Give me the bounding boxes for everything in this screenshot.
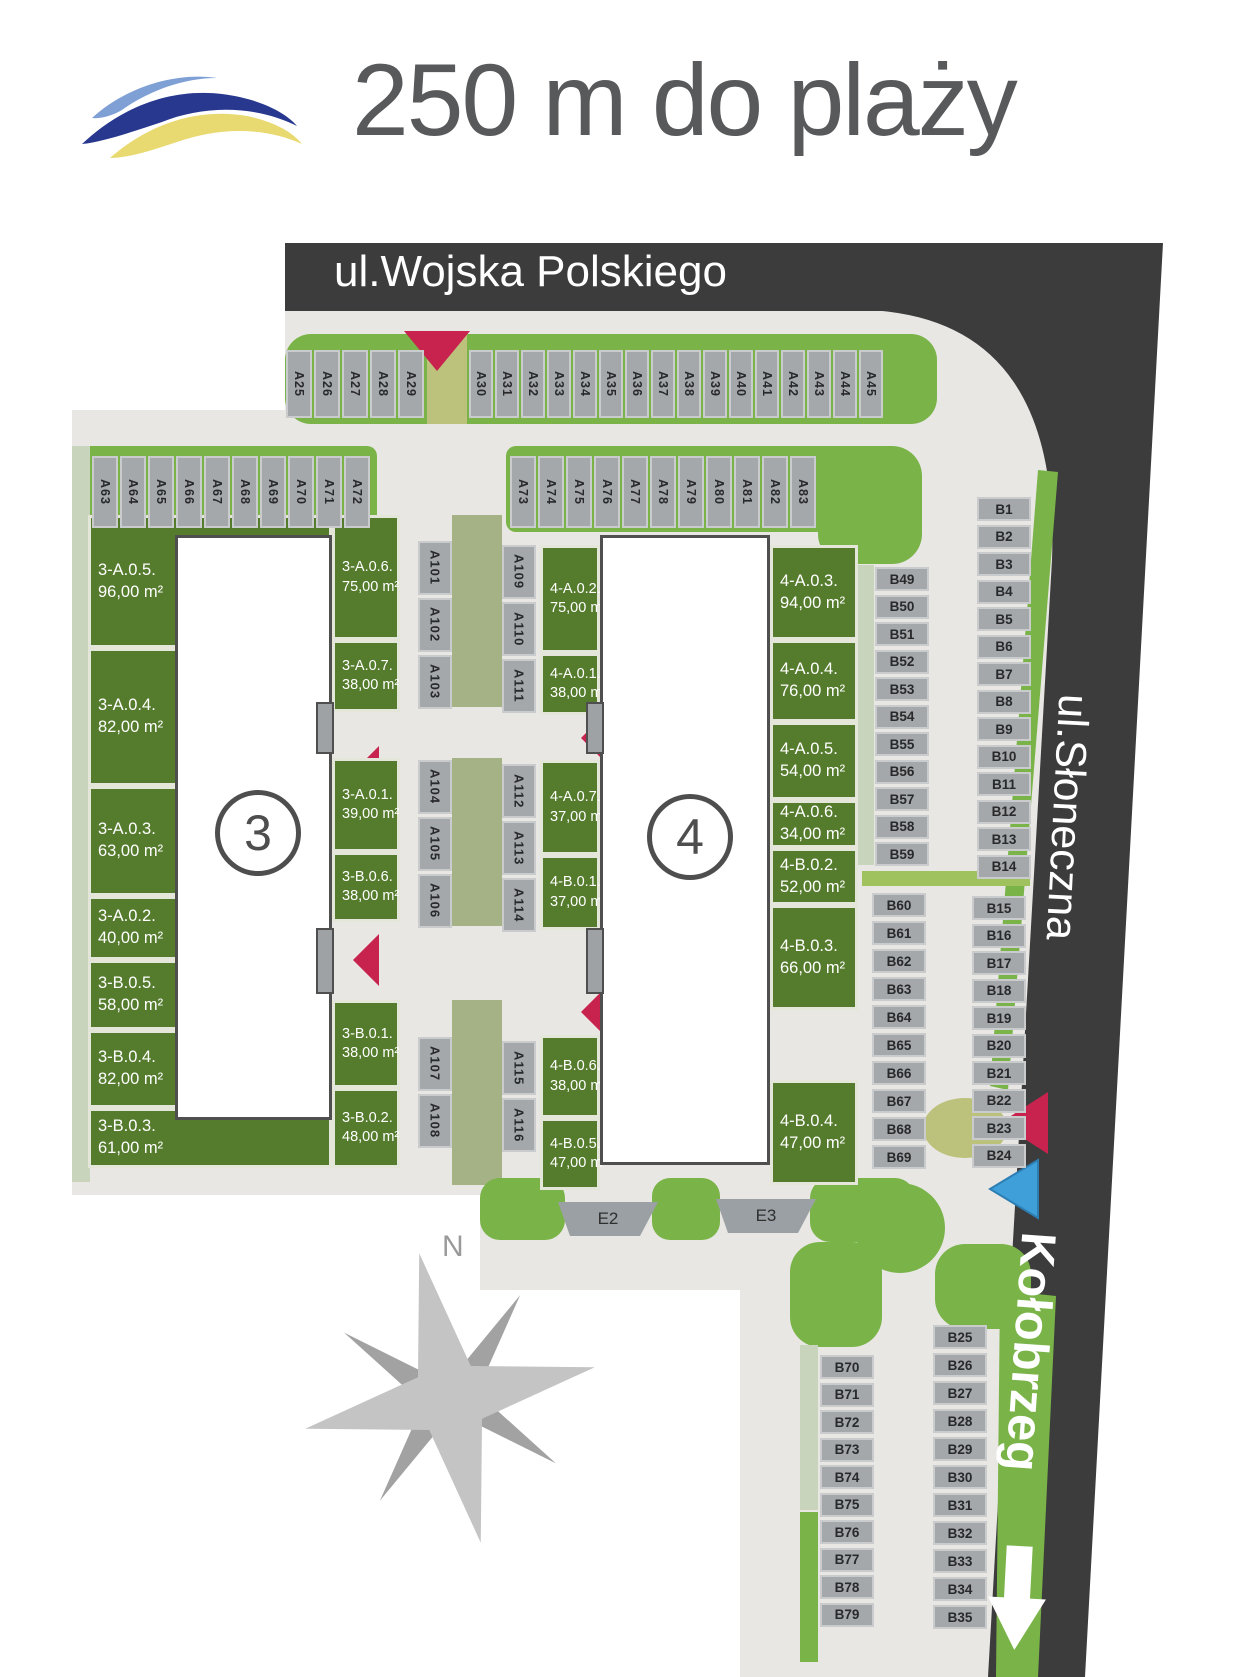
garden-plot: 4-B.0.1.37,00 m²	[540, 855, 600, 930]
parking-stall-label: A38	[682, 371, 696, 397]
parking-stall-label: B14	[992, 859, 1017, 874]
garden-plot: 4-B.0.4.47,00 m²	[770, 1080, 858, 1185]
parking-stall: B49	[875, 567, 929, 591]
parking-stall: B27	[933, 1381, 987, 1405]
parking-stall: A65	[148, 456, 174, 528]
parking-stall-label: A82	[768, 479, 782, 505]
parking-stall: B11	[977, 772, 1031, 796]
garden-plot: 4-A.0.2.75,00 m²	[540, 545, 600, 653]
garden-plot: 4-A.0.3.94,00 m²	[770, 545, 858, 640]
parking-stall: B72	[820, 1410, 874, 1434]
parking-stall-label: A28	[376, 371, 390, 397]
building-4-entrance-upper	[586, 702, 604, 754]
parking-stall-label: B11	[992, 777, 1016, 792]
plot-area: 76,00 m²	[780, 681, 855, 703]
parking-stall: A112	[502, 764, 536, 818]
street-name-wojska-polskiego: ul.Wojska Polskiego	[334, 247, 727, 297]
parking-stall: A31	[495, 350, 519, 418]
parking-stall-label: B78	[835, 1580, 860, 1595]
parking-stall-label: B32	[948, 1526, 973, 1541]
plot-id: 4-B.0.1.	[550, 873, 597, 892]
parking-stall-label: B5	[995, 612, 1012, 627]
parking-stall-label: B34	[948, 1582, 973, 1597]
parking-stall: B69	[872, 1145, 926, 1169]
walkway-gap	[770, 1010, 858, 1080]
parking-stall: B65	[872, 1033, 926, 1057]
parking-stall-label: B54	[890, 709, 915, 724]
parking-stall: B21	[972, 1061, 1026, 1085]
parking-stall-label: A36	[630, 371, 644, 397]
garden-plots-bldg4-right: 4-A.0.3.94,00 m²4-A.0.4.76,00 m²4-A.0.5.…	[770, 515, 858, 1185]
parking-stall: A70	[288, 456, 314, 528]
parking-stall-label: B35	[948, 1610, 973, 1625]
parking-stall-label: A116	[512, 1108, 527, 1142]
parking-stall: A34	[573, 350, 597, 418]
building-3-number: 3	[215, 790, 301, 876]
parking-stall: B10	[977, 745, 1031, 769]
garden-plot: 4-B.0.2.52,00 m²	[770, 848, 858, 905]
plot-id: 4-A.0.3.	[780, 571, 855, 593]
parking-stall-label: A34	[578, 371, 592, 397]
parking-stall-label: A105	[428, 826, 443, 861]
parking-stall-label: B18	[987, 983, 1012, 998]
parking-stall: A103	[418, 655, 452, 709]
parking-stall-label: B27	[948, 1386, 973, 1401]
parking-stall-label: A70	[294, 479, 308, 505]
parking-stall: A68	[232, 456, 258, 528]
header: 250 m do plaży	[0, 0, 1255, 230]
parking-stall-label: A80	[712, 479, 726, 505]
parking-stall-label: A42	[786, 371, 800, 397]
parking-stall: B71	[820, 1383, 874, 1407]
plot-area: 38,00 m²	[342, 887, 397, 906]
parking-stall: B76	[820, 1520, 874, 1544]
garden-plot: 3-A.0.1.39,00 m²	[332, 758, 400, 852]
parking-stall-label: A108	[428, 1103, 443, 1138]
parking-stall: A63	[92, 456, 118, 528]
parking-stall-label: A40	[734, 371, 748, 397]
parking-stall-label: B17	[987, 956, 1012, 971]
plot-area: 75,00 m²	[550, 599, 597, 618]
parking-stall-label: B58	[890, 819, 915, 834]
parking-stall-label: A107	[428, 1046, 443, 1081]
garden-plot: 4-A.0.5.54,00 m²	[770, 722, 858, 800]
parking-stall: A108	[418, 1094, 452, 1148]
parking-stall-label: B1	[995, 502, 1012, 517]
parking-stall: B53	[875, 677, 929, 701]
parking-stall: A113	[502, 821, 536, 875]
plot-area: 48,00 m²	[342, 1128, 397, 1147]
parking-col-b49-b59: B49B50B51B52B53B54B55B56B57B58B59	[875, 567, 929, 866]
parking-stall: A80	[706, 456, 732, 528]
parking-stall-label: A74	[544, 479, 558, 505]
parking-stall: B54	[875, 705, 929, 729]
parking-col-b70-b79: B70B71B72B73B74B75B76B77B78B79	[820, 1355, 874, 1627]
parking-stall: A43	[807, 350, 831, 418]
parking-stall: A79	[678, 456, 704, 528]
parking-col-a112-a114: A112A113A114	[502, 764, 536, 932]
parking-stall: A107	[418, 1037, 452, 1091]
parking-stall-label: A101	[428, 550, 443, 585]
parking-stall-label: B24	[987, 1148, 1012, 1163]
parking-stall: B61	[872, 921, 926, 945]
parking-stall-label: A79	[684, 479, 698, 505]
parking-stall-label: A64	[126, 479, 140, 505]
sage-strip-b49	[858, 565, 874, 865]
parking-stall-label: B68	[887, 1122, 912, 1137]
parking-stall-label: B66	[887, 1066, 912, 1081]
garden-plots-bldg4-left: 4-A.0.2.75,00 m²4-A.0.1.38,00 m²4-A.0.7.…	[540, 515, 600, 1190]
parking-stall: B22	[972, 1089, 1026, 1113]
parking-stall-label: B7	[995, 667, 1012, 682]
page-title: 250 m do plaży	[352, 42, 1016, 159]
parking-stall: B34	[933, 1577, 987, 1601]
parking-stall-label: B75	[835, 1497, 860, 1512]
parking-stall: A77	[622, 456, 648, 528]
parking-col-b60-b69: B60B61B62B63B64B65B66B67B68B69	[872, 893, 926, 1169]
parking-stall-label: A31	[500, 371, 514, 397]
parking-stall: A33	[547, 350, 571, 418]
plot-id: 4-B.0.5.	[550, 1135, 597, 1154]
parking-stall: B20	[972, 1034, 1026, 1058]
plot-id: 3-A.0.6.	[342, 558, 397, 577]
parking-stall: A38	[677, 350, 701, 418]
plot-area: 34,00 m²	[780, 824, 855, 846]
sage-strip-center	[452, 515, 502, 1185]
parking-stall-label: A32	[526, 371, 540, 397]
plot-area: 39,00 m²	[342, 805, 397, 824]
parking-stall: B62	[872, 949, 926, 973]
parking-stall: B75	[820, 1493, 874, 1517]
parking-stall-label: A35	[604, 371, 618, 397]
parking-stall: B52	[875, 650, 929, 674]
parking-stall-label: B61	[887, 926, 912, 941]
plot-area: 38,00 m²	[550, 1077, 597, 1096]
parking-col-a107-a108: A107A108	[418, 1037, 452, 1148]
parking-stall-label: B50	[890, 599, 915, 614]
plot-area: 75,00 m²	[342, 578, 397, 597]
parking-stall-label: B25	[948, 1330, 973, 1345]
parking-col-a104-a106: A104A105A106	[418, 760, 452, 928]
parking-col-b15-b24: B15B16B17B18B19B20B21B22B23B24	[972, 896, 1026, 1168]
plot-id: 4-A.0.1.	[550, 665, 597, 684]
parking-stall: A74	[538, 456, 564, 528]
plot-area: 38,00 m²	[342, 1044, 397, 1063]
parking-stall: A35	[599, 350, 623, 418]
compass-north-label: N	[442, 1230, 464, 1264]
parking-stall: B14	[977, 855, 1031, 879]
parking-stall-label: A111	[512, 669, 527, 703]
parking-stall-label: A76	[600, 479, 614, 505]
parking-stall-label: A106	[428, 883, 443, 918]
parking-stall: B63	[872, 977, 926, 1001]
parking-stall-label: B62	[887, 954, 912, 969]
garden-plot: 4-B.0.5.47,00 m²	[540, 1118, 600, 1190]
parking-stall-label: B29	[948, 1442, 973, 1457]
garden-plot: 4-A.0.7.37,00 m²	[540, 760, 600, 855]
parking-stall-label: A26	[320, 371, 334, 397]
parking-col-a109-a111: A109A110A111	[502, 545, 536, 713]
parking-stall: B8	[977, 690, 1031, 714]
parking-stall-label: B74	[835, 1470, 860, 1485]
parking-stall-label: B60	[887, 898, 912, 913]
parking-stall: B68	[872, 1117, 926, 1141]
plot-id: 4-A.0.5.	[780, 739, 855, 761]
parking-stall-label: B56	[890, 764, 915, 779]
parking-stall: B56	[875, 760, 929, 784]
parking-stall: B26	[933, 1353, 987, 1377]
parking-stall: B64	[872, 1005, 926, 1029]
garden-plot: 3-A.0.6.75,00 m²	[332, 515, 400, 640]
parking-stall: A30	[469, 350, 493, 418]
parking-stall: B73	[820, 1438, 874, 1462]
parking-stall-label: A68	[238, 479, 252, 505]
parking-stall-label: A75	[572, 479, 586, 505]
wave-logo-icon	[82, 66, 332, 176]
parking-stall: B19	[972, 1006, 1026, 1030]
parking-stall-label: B52	[890, 654, 915, 669]
parking-stall: B29	[933, 1437, 987, 1461]
building-3-entrance-lower	[316, 928, 334, 994]
parking-stall: B4	[977, 580, 1031, 604]
parking-stall: A27	[342, 350, 368, 418]
garden-plot: 4-B.0.3.66,00 m²	[770, 905, 858, 1010]
parking-stall-label: B57	[890, 792, 915, 807]
parking-col-a101-a103: A101A102A103	[418, 541, 452, 709]
parking-stall-label: B76	[835, 1525, 860, 1540]
parking-stall-label: B77	[835, 1552, 860, 1567]
parking-stall: A75	[566, 456, 592, 528]
garden-plots-bldg3-right: 3-A.0.6.75,00 m²3-A.0.7.38,00 m²3-A.0.1.…	[332, 515, 400, 1168]
parking-stall: A116	[502, 1098, 536, 1152]
parking-stall-label: B51	[890, 627, 915, 642]
parking-stall-label: B4	[995, 584, 1012, 599]
parking-stall: B12	[977, 800, 1031, 824]
building-3-entrance-upper	[316, 702, 334, 754]
parking-stall: B74	[820, 1465, 874, 1489]
plot-id: 3-A.0.1.	[342, 786, 397, 805]
parking-stall: A69	[260, 456, 286, 528]
parking-stall-label: A30	[474, 371, 488, 397]
plot-area: 54,00 m²	[780, 761, 855, 783]
parking-stall: B51	[875, 622, 929, 646]
parking-stall-label: B19	[987, 1011, 1012, 1026]
building-4-number: 4	[647, 794, 733, 880]
parking-stall: B66	[872, 1061, 926, 1085]
parking-stall-label: A77	[628, 479, 642, 505]
parking-row-a73-a83: A73A74A75A76A77A78A79A80A81A82A83	[510, 456, 816, 528]
parking-stall-label: A43	[812, 371, 826, 397]
walkway-gap	[332, 712, 400, 758]
parking-stall: A109	[502, 545, 536, 599]
parking-stall-label: B69	[887, 1150, 912, 1165]
parking-stall-label: A25	[292, 371, 306, 397]
parking-stall: A32	[521, 350, 545, 418]
parking-stall: B32	[933, 1521, 987, 1545]
parking-stall: A41	[755, 350, 779, 418]
parking-stall: A115	[502, 1041, 536, 1095]
parking-stall: B31	[933, 1493, 987, 1517]
plot-area: 38,00 m²	[550, 684, 597, 703]
parking-stall-label: A109	[512, 554, 527, 589]
parking-stall: A66	[176, 456, 202, 528]
parking-stall: A105	[418, 817, 452, 871]
parking-stall: B77	[820, 1548, 874, 1572]
parking-stall: A81	[734, 456, 760, 528]
plot-area: 47,00 m²	[550, 1154, 597, 1173]
parking-stall: A25	[286, 350, 312, 418]
parking-stall: B13	[977, 827, 1031, 851]
parking-stall-label: A103	[428, 664, 443, 699]
parking-stall-label: B21	[987, 1066, 1012, 1081]
parking-stall-label: A27	[348, 371, 362, 397]
parking-stall: A28	[370, 350, 396, 418]
parking-stall: A45	[859, 350, 883, 418]
parking-stall: A42	[781, 350, 805, 418]
parking-stall-label: B3	[995, 557, 1012, 572]
parking-stall: A83	[790, 456, 816, 528]
parking-stall: A76	[594, 456, 620, 528]
parking-stall-label: B20	[987, 1038, 1012, 1053]
parking-stall-label: B49	[890, 572, 915, 587]
parking-stall: A72	[344, 456, 370, 528]
grass-pad-b70-top	[790, 1242, 882, 1347]
garden-plot: 4-A.0.4.76,00 m²	[770, 640, 858, 722]
parking-stall: B78	[820, 1575, 874, 1599]
parking-stall: B59	[875, 842, 929, 866]
plot-area: 38,00 m²	[342, 676, 397, 695]
parking-row-a63-a72: A63A64A65A66A67A68A69A70A71A72	[92, 456, 370, 528]
parking-stall: A111	[502, 659, 536, 713]
parking-stall-label: A65	[154, 479, 168, 505]
parking-stall-label: A83	[796, 479, 810, 505]
parking-stall: B67	[872, 1089, 926, 1113]
garden-plot: 3-A.0.7.38,00 m²	[332, 640, 400, 712]
parking-stall-label: A81	[740, 479, 754, 505]
parking-stall-label: B2	[995, 529, 1012, 544]
parking-stall-label: B28	[948, 1414, 973, 1429]
parking-stall: B79	[820, 1603, 874, 1627]
parking-col-a115-a116: A115A116	[502, 1041, 536, 1152]
parking-stall: B2	[977, 525, 1031, 549]
parking-stall-label: B59	[890, 847, 915, 862]
plot-id: 3-B.0.1.	[342, 1025, 397, 1044]
garden-plot: 4-A.0.6.34,00 m²	[770, 800, 858, 848]
parking-col-b25-b35: B25B26B27B28B29B30B31B32B33B34B35	[933, 1325, 987, 1629]
parking-stall-label: B22	[987, 1093, 1012, 1108]
parking-stall-label: A104	[428, 769, 443, 804]
parking-stall-label: A110	[512, 612, 527, 646]
parking-stall: B18	[972, 979, 1026, 1003]
parking-stall: A40	[729, 350, 753, 418]
parking-stall: B50	[875, 595, 929, 619]
parking-stall: B1	[977, 497, 1031, 521]
parking-stall-label: A29	[404, 371, 418, 397]
parking-stall-label: B12	[992, 804, 1017, 819]
parking-stall: B9	[977, 717, 1031, 741]
parking-stall: A78	[650, 456, 676, 528]
parking-stall: B25	[933, 1325, 987, 1349]
parking-stall: B17	[972, 951, 1026, 975]
garden-plot: 4-B.0.6.38,00 m²	[540, 1035, 600, 1118]
parking-stall-label: B30	[948, 1470, 973, 1485]
parking-stall-label: A71	[322, 479, 336, 505]
parking-stall: A102	[418, 598, 452, 652]
parking-stall: B57	[875, 787, 929, 811]
plot-area: 47,00 m²	[780, 1133, 855, 1155]
garden-plot: 3-B.0.6.38,00 m²	[332, 852, 400, 922]
parking-stall: B5	[977, 607, 1031, 631]
parking-stall: A37	[651, 350, 675, 418]
parking-stall-label: A114	[512, 888, 527, 922]
parking-stall-label: B65	[887, 1038, 912, 1053]
parking-stall: A67	[204, 456, 230, 528]
parking-stall-label: A44	[838, 371, 852, 397]
plot-id: 4-B.0.6.	[550, 1057, 597, 1076]
plot-id: 3-A.0.7.	[342, 657, 397, 676]
plot-area: 37,00 m²	[550, 808, 597, 827]
parking-stall-label: A37	[656, 371, 670, 397]
parking-stall: A82	[762, 456, 788, 528]
parking-stall-label: A73	[516, 479, 530, 505]
parking-stall-label: B15	[987, 901, 1012, 916]
parking-stall: A39	[703, 350, 727, 418]
plot-id: 3-B.0.6.	[342, 868, 397, 887]
plot-id: 4-B.0.3.	[780, 936, 855, 958]
parking-stall-label: A63	[98, 479, 112, 505]
parking-stall: B6	[977, 635, 1031, 659]
parking-stall: B33	[933, 1549, 987, 1573]
parking-stall: A26	[314, 350, 340, 418]
parking-stall: B24	[972, 1144, 1026, 1168]
parking-stall-label: A69	[266, 479, 280, 505]
plot-id: 4-B.0.4.	[780, 1111, 855, 1133]
parking-stall: A101	[418, 541, 452, 595]
parking-stall-label: A115	[512, 1051, 527, 1085]
parking-col-b1-b14: B1B2B3B4B5B6B7B8B9B10B11B12B13B14	[977, 497, 1031, 879]
parking-stall-label: A66	[182, 479, 196, 505]
parking-stall-label: A78	[656, 479, 670, 505]
parking-stall: B70	[820, 1355, 874, 1379]
garden-plot: 3-B.0.2.48,00 m²	[332, 1088, 400, 1168]
parking-stall-label: B31	[948, 1498, 973, 1513]
plot-id: 3-B.0.2.	[342, 1109, 397, 1128]
parking-stall: A29	[398, 350, 424, 418]
parking-stall: A73	[510, 456, 536, 528]
plot-id: 4-B.0.2.	[780, 855, 855, 877]
parking-stall-label: B23	[987, 1121, 1012, 1136]
plot-id: 4-A.0.2.	[550, 580, 597, 599]
parking-stall: A104	[418, 760, 452, 814]
parking-row-a30-a45: A30A31A32A33A34A35A36A37A38A39A40A41A42A…	[469, 350, 883, 418]
sage-strip-b70	[800, 1345, 818, 1510]
parking-stall: B55	[875, 732, 929, 756]
parking-stall-label: B8	[995, 694, 1012, 709]
parking-stall: A71	[316, 456, 342, 528]
parking-stall: B23	[972, 1116, 1026, 1140]
garden-plot: 3-B.0.1.38,00 m²	[332, 1000, 400, 1088]
grass-strip-b70	[800, 1512, 818, 1662]
plot-area: 52,00 m²	[780, 877, 855, 899]
plot-id: 4-A.0.4.	[780, 659, 855, 681]
parking-stall-label: B63	[887, 982, 912, 997]
parking-stall-label: B16	[987, 928, 1012, 943]
plot-area: 61,00 m²	[98, 1138, 329, 1160]
parking-stall-label: A45	[864, 371, 878, 397]
parking-stall-label: B64	[887, 1010, 912, 1025]
parking-stall: B60	[872, 893, 926, 917]
parking-stall-label: B6	[995, 639, 1012, 654]
